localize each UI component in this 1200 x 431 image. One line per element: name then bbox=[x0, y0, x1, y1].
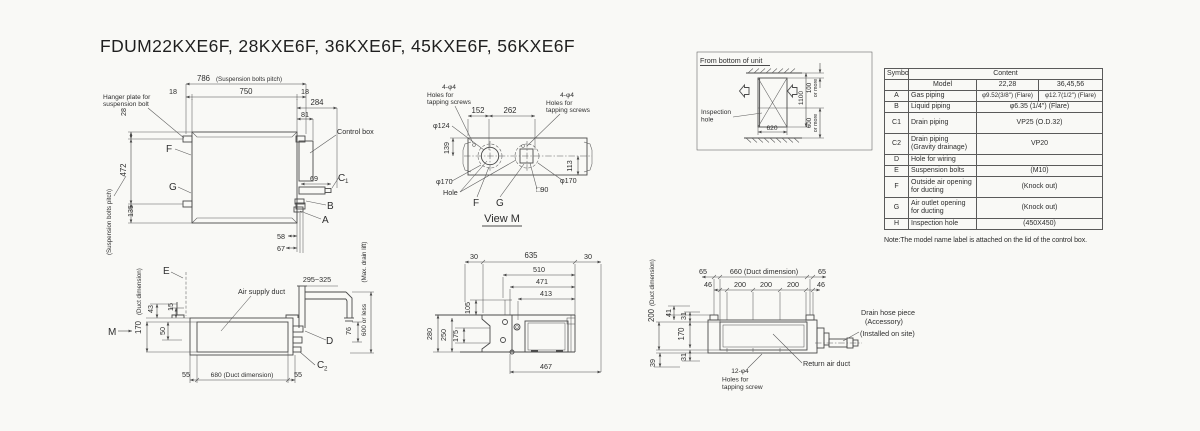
dim-620: 620 bbox=[766, 125, 777, 132]
spec-sym-f: F bbox=[885, 177, 909, 198]
spec-table-section: Symbol Content Model 22,28 36,45,56 A Ga… bbox=[884, 68, 1114, 244]
dim-467: 467 bbox=[540, 362, 552, 371]
hanger-plate-label-2: suspension bolt bbox=[103, 101, 149, 108]
spec-label-c1: Drain piping bbox=[909, 113, 977, 134]
spec-val-b: φ6.35 (1/4") (Flare) bbox=[977, 102, 1103, 113]
spec-label-f: Outside air opening for ducting bbox=[909, 177, 977, 198]
symbol-f-viewm: F bbox=[473, 198, 479, 209]
hole-label: Hole bbox=[443, 188, 458, 197]
dim-600: 600 bbox=[806, 117, 813, 128]
spec-label-c2: Drain piping (Gravity drainage) bbox=[909, 134, 977, 155]
dim-200-vertical: 200 bbox=[647, 308, 656, 322]
dim-105: 105 bbox=[463, 302, 472, 314]
symbol-g-plan: G bbox=[169, 182, 177, 193]
end-view-geometry bbox=[433, 260, 601, 374]
spec-model-label: Model bbox=[909, 80, 977, 91]
spec-val-d bbox=[977, 155, 1103, 166]
dim-471: 471 bbox=[536, 277, 548, 286]
spec-label-a: Gas piping bbox=[909, 91, 977, 102]
spec-sym-b: B bbox=[885, 102, 909, 113]
side-view: E Air supply duct 170 (Duct dimension) 4… bbox=[108, 242, 374, 383]
bottom-of-unit-inset: From bottom of unit Inspection hole 620 … bbox=[697, 52, 872, 150]
dim-750: 750 bbox=[239, 87, 253, 96]
tapping-right-1: 4-φ4 bbox=[560, 92, 574, 99]
dim-170-duct: 170 bbox=[134, 320, 143, 334]
spec-label-b: Liquid piping bbox=[909, 102, 977, 113]
spec-val-f: (Knock out) bbox=[977, 177, 1103, 198]
spec-table: Symbol Content Model 22,28 36,45,56 A Ga… bbox=[884, 68, 1103, 230]
spec-sym-c1: C1 bbox=[885, 113, 909, 134]
tapping-left-2: Holes for bbox=[427, 92, 454, 99]
dim-295-325: 295~325 bbox=[303, 275, 331, 284]
dim-100-or-more: or more bbox=[813, 79, 819, 98]
dim-510: 510 bbox=[533, 265, 545, 274]
inspection-hole-label-2: hole bbox=[701, 117, 714, 124]
symbol-b-plan: B bbox=[327, 201, 334, 212]
dim-280: 280 bbox=[425, 328, 434, 340]
table-note: Note:The model name label is attached on… bbox=[884, 237, 1114, 244]
hanger-plate-label-1: Hanger plate for bbox=[103, 94, 151, 101]
spec-label-h: Inspection hole bbox=[909, 219, 977, 230]
symbol-d-side: D bbox=[326, 336, 333, 347]
dim-39: 39 bbox=[648, 359, 657, 367]
dim-18-left: 18 bbox=[169, 87, 177, 96]
inset-geometry bbox=[697, 52, 872, 150]
spec-val-a1: φ9.52(3/8") (Flare) bbox=[977, 91, 1039, 102]
spec-val-h: (450X450) bbox=[977, 219, 1103, 230]
dim-sq90: □90 bbox=[536, 185, 548, 194]
return-duct-view: 65 660 (Duct dimension) 65 46 200 200 20… bbox=[647, 259, 915, 391]
dim-31-top: 31 bbox=[679, 312, 688, 320]
dim-67: 67 bbox=[277, 244, 285, 253]
dim-30-left: 30 bbox=[470, 252, 478, 261]
dim-46-right: 46 bbox=[817, 280, 825, 289]
dim-46-left: 46 bbox=[704, 280, 712, 289]
dim-413: 413 bbox=[540, 289, 552, 298]
symbol-g-viewm: G bbox=[496, 198, 504, 209]
dim-200-c: 200 bbox=[787, 280, 799, 289]
spec-cell-empty bbox=[885, 80, 909, 91]
spec-sym-a: A bbox=[885, 91, 909, 102]
airflow-arrow-left bbox=[740, 85, 750, 97]
table-row: G Air outlet opening for ducting (Knock … bbox=[885, 198, 1103, 219]
symbol-e-side: E bbox=[163, 266, 170, 277]
tapping-right-2: Holes for bbox=[546, 100, 573, 107]
dim-600-or-less: 600 or less bbox=[361, 303, 368, 336]
spec-header-content: Content bbox=[909, 69, 1103, 80]
dim-18-right: 18 bbox=[301, 87, 309, 96]
airflow-arrow-right bbox=[788, 85, 798, 97]
spec-model-22-28: 22,28 bbox=[977, 80, 1039, 91]
inset-title: From bottom of unit bbox=[700, 56, 762, 65]
view-m-caption: View M bbox=[484, 213, 520, 225]
table-row: H Inspection hole (450X450) bbox=[885, 219, 1103, 230]
dim-15: 15 bbox=[166, 303, 175, 311]
dim-175: 175 bbox=[451, 330, 460, 342]
dim-284: 284 bbox=[310, 98, 324, 107]
spec-val-e: (M10) bbox=[977, 166, 1103, 177]
dim-139: 139 bbox=[442, 142, 451, 154]
control-box-label: Control box bbox=[337, 127, 374, 136]
dim-65-right: 65 bbox=[818, 267, 826, 276]
dim-170-ret: 170 bbox=[677, 327, 686, 341]
dim-100: 100 bbox=[806, 82, 813, 93]
end-view: 30 635 30 510 471 413 105 175 250 280 46… bbox=[425, 251, 601, 374]
spec-label-d: Hole for wiring bbox=[909, 155, 977, 166]
spec-sym-g: G bbox=[885, 198, 909, 219]
dim-1100: 1100 bbox=[798, 91, 805, 106]
dim-472: 472 bbox=[119, 163, 128, 176]
spec-sym-c2: C2 bbox=[885, 134, 909, 155]
air-supply-duct-label: Air supply duct bbox=[238, 287, 285, 296]
dim-31-bottom: 31 bbox=[679, 353, 688, 361]
dim-dia170-left: φ170 bbox=[436, 177, 453, 186]
max-drain-lift-label: (Max. drain lift) bbox=[361, 242, 368, 283]
spec-label-e: Suspension bolts bbox=[909, 166, 977, 177]
drain-hose-label-3: (Installed on site) bbox=[860, 329, 915, 338]
dim-55-right: 55 bbox=[294, 370, 302, 379]
table-row: D Hole for wiring bbox=[885, 155, 1103, 166]
view-m: 4-φ4 Holes for tapping screws 4-φ4 Holes… bbox=[427, 84, 592, 226]
spec-val-a2: φ12.7(1/2") (Flare) bbox=[1039, 91, 1103, 102]
symbol-f-plan: F bbox=[166, 144, 172, 155]
dim-200-a: 200 bbox=[734, 280, 746, 289]
table-row: E Suspension bolts (M10) bbox=[885, 166, 1103, 177]
suspension-pitch-side-label: (Suspension bolts pitch) bbox=[106, 189, 113, 255]
dim-81: 81 bbox=[301, 110, 309, 119]
dim-135: 135 bbox=[126, 205, 135, 217]
dim-69: 69 bbox=[310, 174, 318, 183]
dim-58: 58 bbox=[277, 232, 285, 241]
symbol-a-plan: A bbox=[322, 215, 329, 226]
spec-sym-h: H bbox=[885, 219, 909, 230]
plan-view: 786 (Suspension bolts pitch) 18 750 18 2… bbox=[103, 74, 374, 255]
dim-43: 43 bbox=[146, 305, 155, 313]
drain-hose-label-2: (Accessory) bbox=[865, 317, 903, 326]
technical-drawing-page: FDUM22KXE6F, 28KXE6F, 36KXE6F, 45KXE6F, … bbox=[0, 0, 1200, 431]
dim-50: 50 bbox=[158, 327, 167, 335]
spec-val-c1: VP25 (O.D.32) bbox=[977, 113, 1103, 134]
dim-65-left: 65 bbox=[699, 267, 707, 276]
dim-dia170-right: φ170 bbox=[560, 176, 577, 185]
table-row: A Gas piping φ9.52(3/8") (Flare) φ12.7(1… bbox=[885, 91, 1103, 102]
symbol-c1-sub-plan: 1 bbox=[345, 178, 349, 185]
dim-76: 76 bbox=[344, 327, 353, 335]
dim-250: 250 bbox=[439, 329, 448, 341]
dim-55-left: 55 bbox=[182, 370, 190, 379]
spec-header-symbol: Symbol bbox=[885, 69, 909, 80]
table-row: C1 Drain piping VP25 (O.D.32) bbox=[885, 113, 1103, 134]
table-row: B Liquid piping φ6.35 (1/4") (Flare) bbox=[885, 102, 1103, 113]
inspection-hole-label-1: Inspection bbox=[701, 109, 731, 116]
dim-152: 152 bbox=[471, 106, 484, 115]
dim-786-note: (Suspension bolts pitch) bbox=[216, 76, 282, 83]
tapping-right-3: tapping screws bbox=[546, 107, 591, 114]
dim-680-duct: 680 (Duct dimension) bbox=[211, 372, 274, 379]
spec-sym-d: D bbox=[885, 155, 909, 166]
spec-val-g: (Knock out) bbox=[977, 198, 1103, 219]
symbol-c2-sub-side: 2 bbox=[324, 366, 328, 373]
dim-200-vertical-note: (Duct dimension) bbox=[649, 259, 656, 306]
spec-sym-e: E bbox=[885, 166, 909, 177]
dim-600-or-more: or more bbox=[813, 114, 819, 133]
table-row: F Outside air opening for ducting (Knock… bbox=[885, 177, 1103, 198]
dim-262: 262 bbox=[503, 106, 516, 115]
dim-28: 28 bbox=[119, 108, 128, 116]
tapping-holes-label-3: tapping screw bbox=[722, 384, 763, 391]
dim-113: 113 bbox=[565, 160, 574, 171]
drain-hose-label-1: Drain hose piece bbox=[861, 308, 915, 317]
spec-model-36-45-56: 36,45,56 bbox=[1039, 80, 1103, 91]
dim-200-b: 200 bbox=[760, 280, 772, 289]
dim-635: 635 bbox=[524, 251, 538, 260]
dim-786: 786 bbox=[197, 74, 210, 83]
dim-660-duct: 660 (Duct dimension) bbox=[730, 267, 798, 276]
tapping-left-3: tapping screws bbox=[427, 99, 472, 106]
return-air-duct-label: Return air duct bbox=[803, 359, 850, 368]
dim-41: 41 bbox=[664, 309, 673, 317]
view-arrow-m-label: M bbox=[108, 327, 116, 338]
spec-label-g: Air outlet opening for ducting bbox=[909, 198, 977, 219]
dim-170-duct-note: (Duct dimension) bbox=[136, 268, 143, 315]
table-row: C2 Drain piping (Gravity drainage) VP20 bbox=[885, 134, 1103, 155]
tapping-holes-label-2: Holes for bbox=[722, 377, 749, 384]
dim-dia124: φ124 bbox=[433, 121, 450, 130]
tapping-holes-label-1: 12-φ4 bbox=[731, 368, 749, 375]
spec-val-c2: VP20 bbox=[977, 134, 1103, 155]
dim-30-right: 30 bbox=[584, 252, 592, 261]
tapping-left-1: 4-φ4 bbox=[442, 84, 456, 91]
